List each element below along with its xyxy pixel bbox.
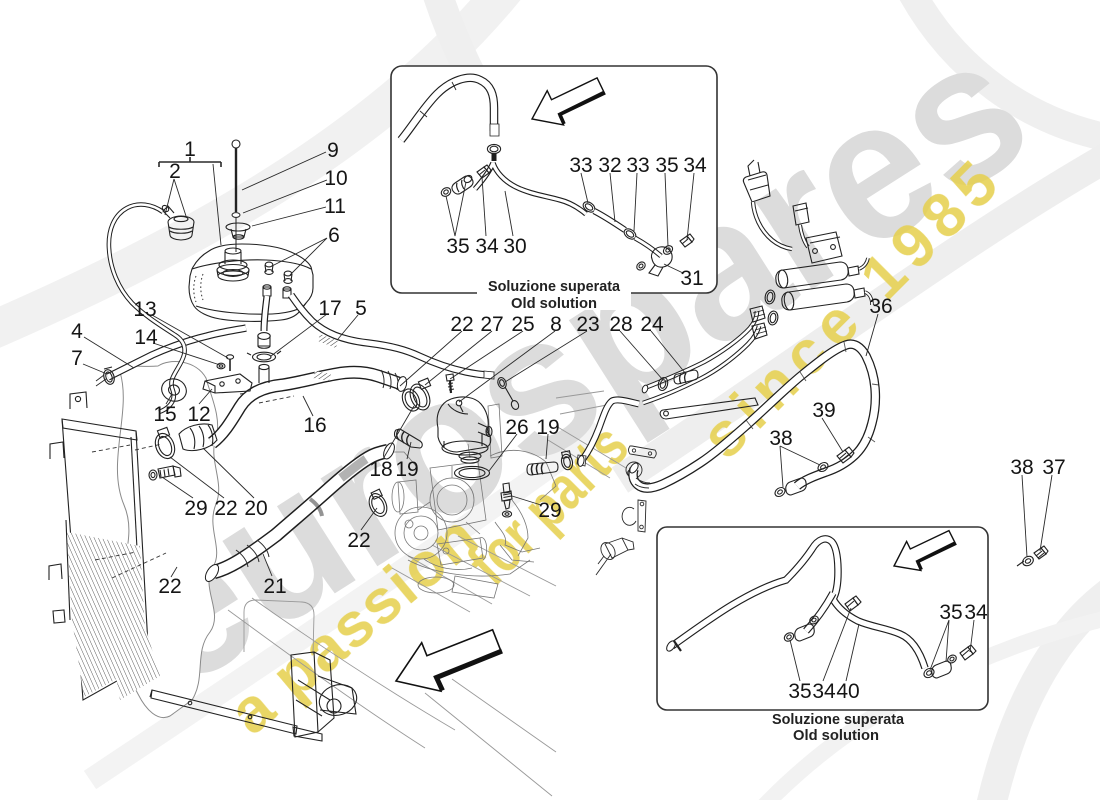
svg-text:Soluzione superata: Soluzione superata	[488, 278, 621, 295]
svg-text:1: 1	[184, 138, 196, 161]
svg-text:19: 19	[395, 458, 418, 481]
svg-text:19: 19	[536, 416, 559, 439]
svg-text:39: 39	[812, 399, 835, 422]
svg-text:22: 22	[214, 497, 237, 520]
svg-text:33: 33	[569, 154, 592, 177]
svg-text:22: 22	[158, 575, 181, 598]
svg-text:34: 34	[812, 680, 836, 703]
svg-text:8: 8	[550, 313, 562, 336]
svg-text:29: 29	[538, 499, 561, 522]
svg-text:25: 25	[511, 313, 534, 336]
svg-text:37: 37	[1042, 456, 1065, 479]
svg-text:4: 4	[71, 320, 83, 343]
svg-text:35: 35	[788, 680, 811, 703]
svg-text:34: 34	[964, 601, 988, 624]
svg-text:Old solution: Old solution	[793, 727, 879, 744]
svg-text:Soluzione superata: Soluzione superata	[772, 711, 905, 728]
svg-text:34: 34	[475, 235, 499, 258]
svg-text:14: 14	[134, 326, 158, 349]
svg-text:24: 24	[640, 313, 664, 336]
svg-text:17: 17	[318, 297, 341, 320]
svg-text:18: 18	[369, 458, 392, 481]
svg-text:10: 10	[324, 167, 347, 190]
svg-text:5: 5	[355, 297, 367, 320]
svg-text:6: 6	[328, 224, 340, 247]
svg-text:35: 35	[446, 235, 469, 258]
svg-text:22: 22	[450, 313, 473, 336]
svg-text:35: 35	[655, 154, 678, 177]
svg-text:22: 22	[347, 529, 370, 552]
svg-text:27: 27	[480, 313, 503, 336]
svg-text:31: 31	[680, 267, 703, 290]
svg-text:13: 13	[133, 298, 156, 321]
svg-text:33: 33	[626, 154, 649, 177]
svg-text:26: 26	[505, 416, 528, 439]
svg-text:Old solution: Old solution	[511, 295, 597, 312]
svg-text:15: 15	[153, 403, 176, 426]
svg-text:29: 29	[184, 497, 207, 520]
svg-text:20: 20	[244, 497, 267, 520]
svg-text:12: 12	[187, 403, 210, 426]
svg-text:7: 7	[71, 347, 83, 370]
svg-text:38: 38	[769, 427, 792, 450]
svg-text:40: 40	[836, 680, 859, 703]
svg-text:34: 34	[683, 154, 707, 177]
svg-text:16: 16	[303, 414, 326, 437]
svg-text:36: 36	[869, 295, 892, 318]
svg-text:21: 21	[263, 575, 286, 598]
svg-text:35: 35	[939, 601, 962, 624]
svg-text:32: 32	[598, 154, 621, 177]
svg-text:28: 28	[609, 313, 632, 336]
svg-text:30: 30	[503, 235, 526, 258]
svg-text:2: 2	[169, 160, 181, 183]
svg-text:38: 38	[1010, 456, 1033, 479]
svg-text:9: 9	[327, 139, 339, 162]
svg-text:23: 23	[576, 313, 599, 336]
svg-text:11: 11	[324, 195, 346, 218]
